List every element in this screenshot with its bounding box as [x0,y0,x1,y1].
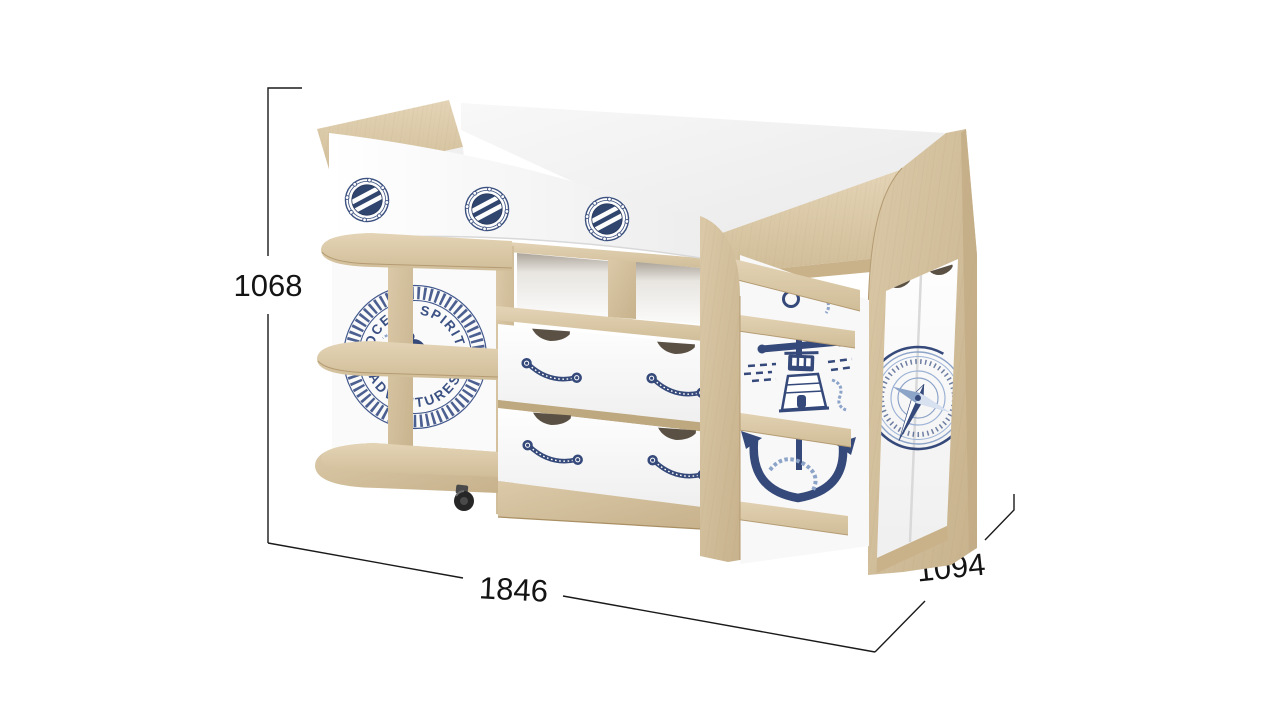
width-dimension-label: 1846 [478,570,549,609]
height-dimension-label: 1068 [234,268,303,303]
mobile-shelf-unit: OCEAN SPIRIT ADVENTURES ★ ★ [315,233,512,511]
width-dimension-line [268,543,875,652]
height-dimension: 1068 [234,88,303,543]
height-dimension-line [268,88,302,543]
furniture-dimension-diagram: 1068 1846 1094 [0,0,1280,720]
loft-bed-drawing: 1068 1846 1094 [0,0,1280,720]
drawer-chest [496,241,713,529]
ladder-stile [700,216,740,562]
shelf [321,233,512,271]
shelf [315,443,498,493]
width-dimension: 1846 [268,543,875,652]
cubby-divider [608,259,636,319]
cubby-opening [517,253,608,317]
loft-bed-illustration: OCEAN SPIRIT ADVENTURES ★ ★ [315,100,977,575]
cubby-opening [636,262,711,325]
